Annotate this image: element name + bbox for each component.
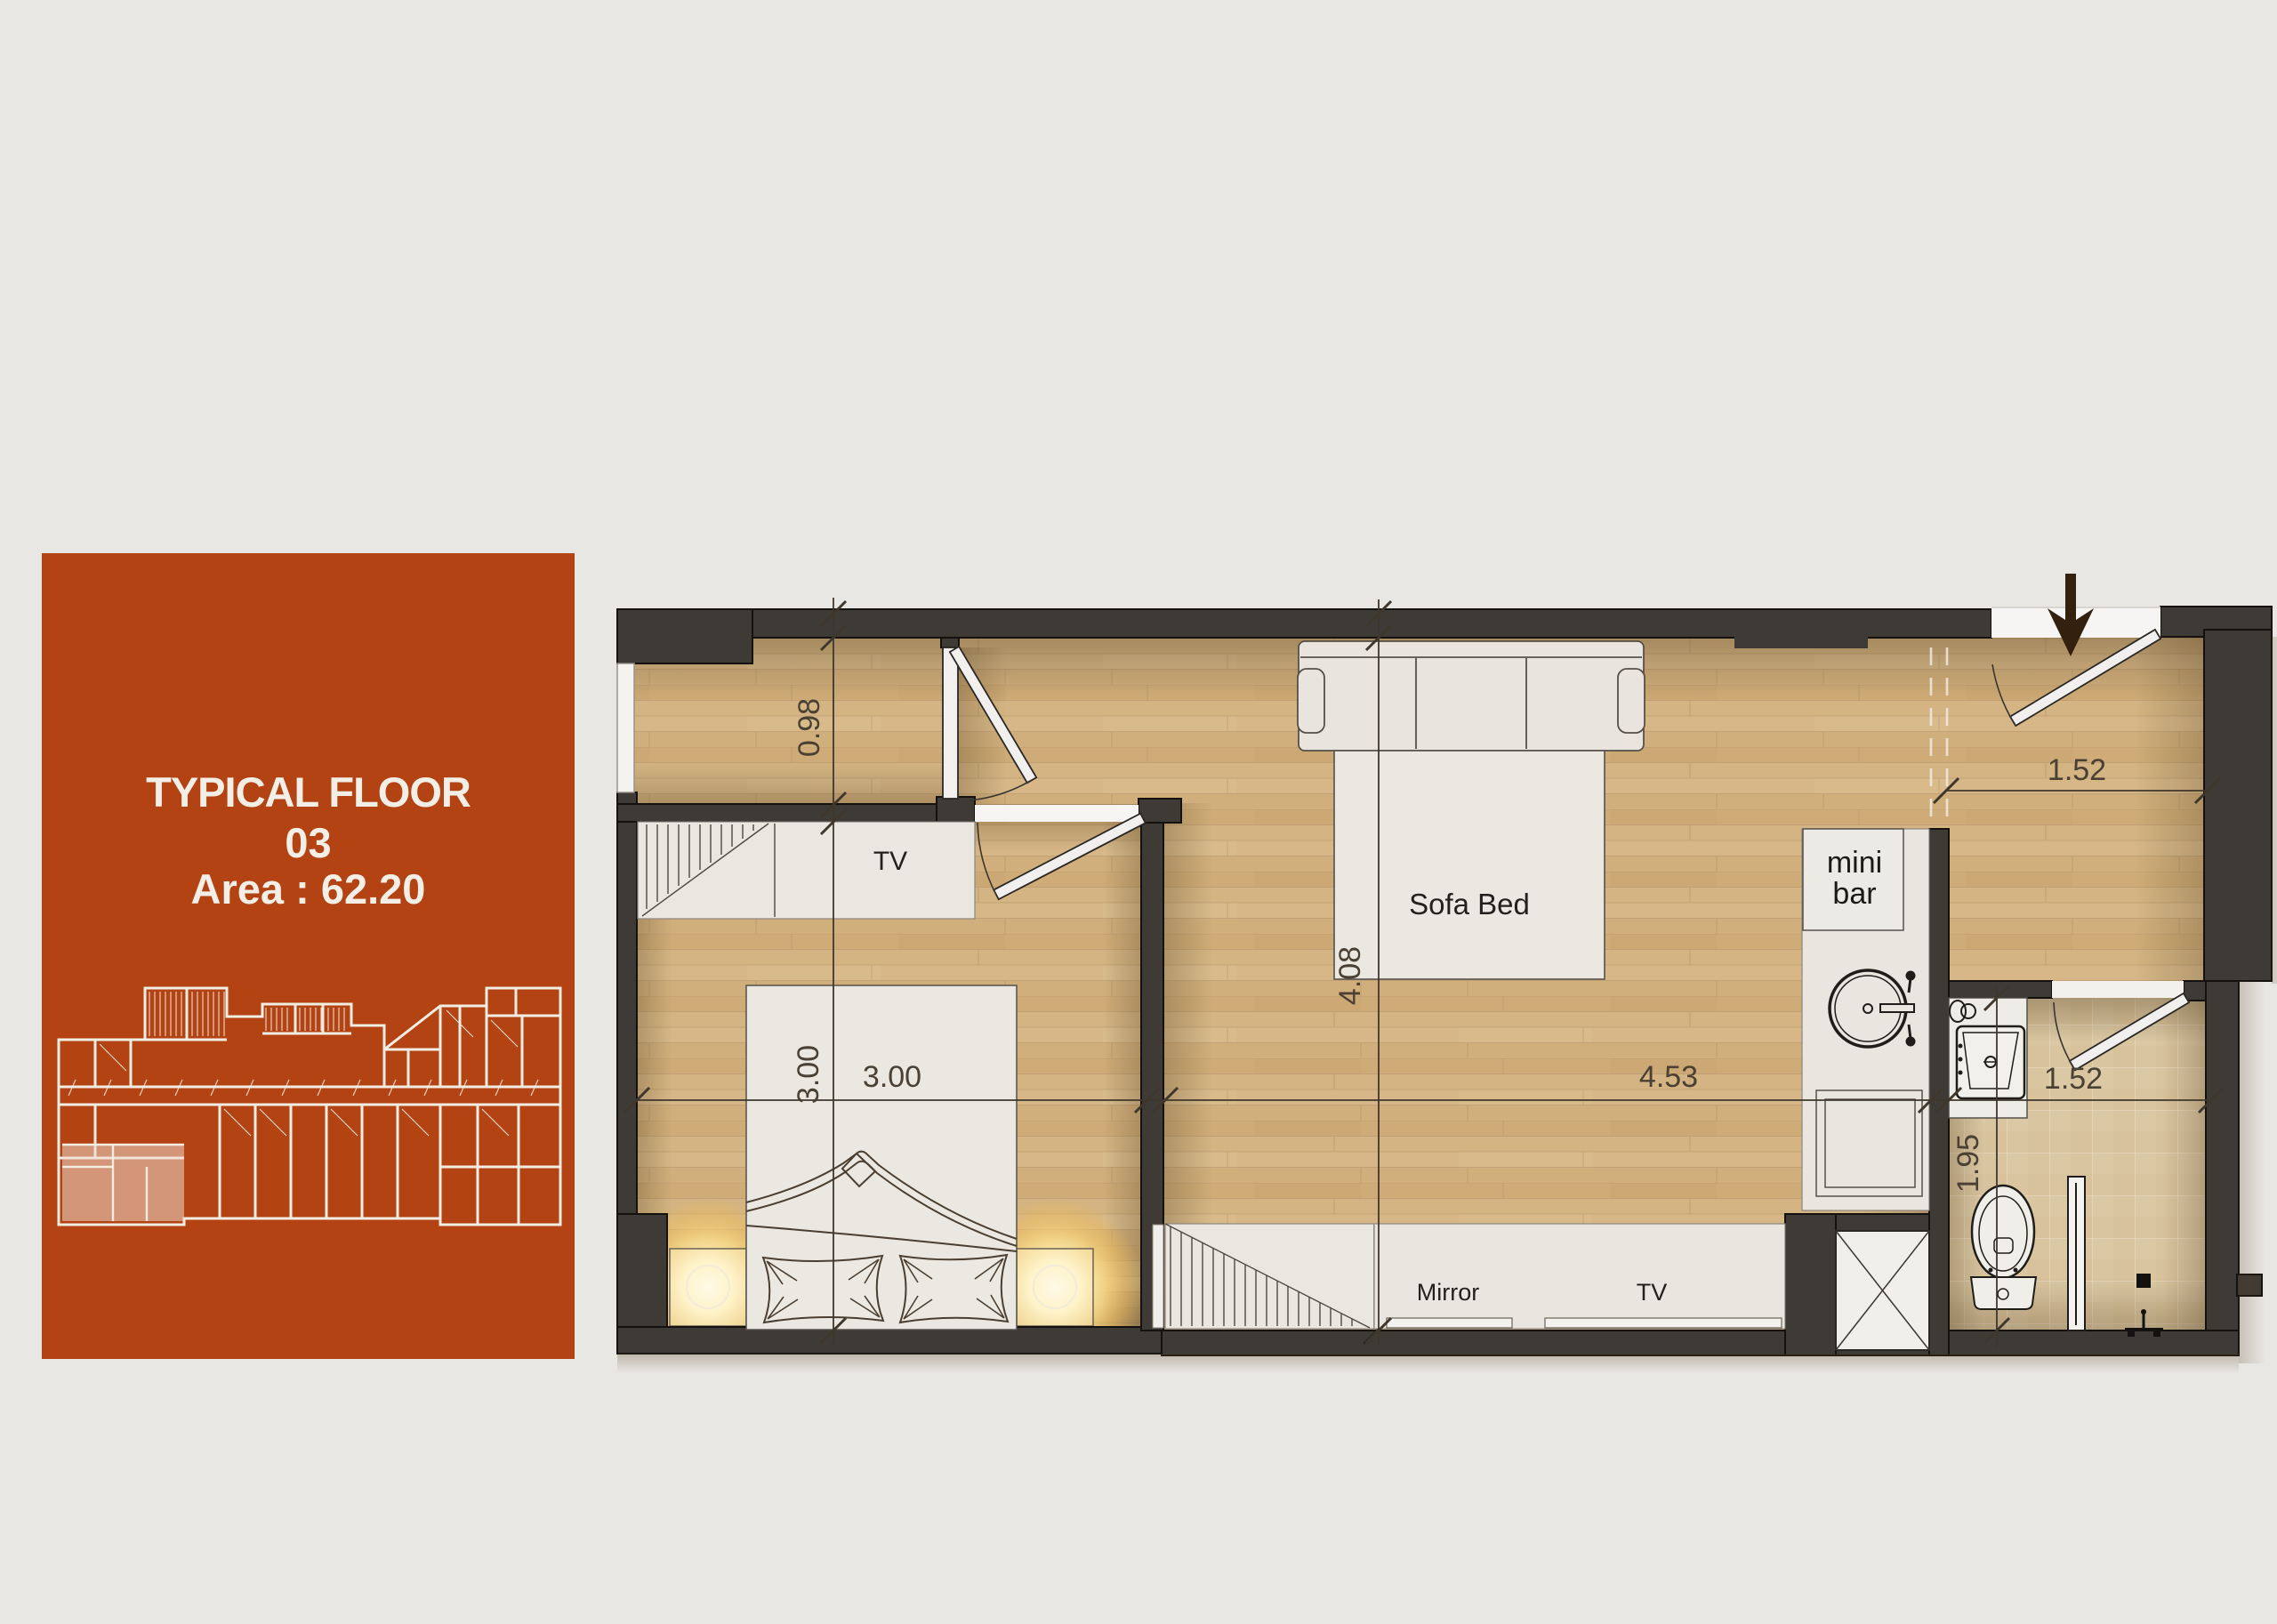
svg-text:Sofa Bed: Sofa Bed — [1409, 888, 1530, 921]
svg-text:3.00: 3.00 — [792, 1045, 825, 1104]
svg-text:TV: TV — [873, 847, 907, 876]
svg-text:TV: TV — [1637, 1279, 1668, 1306]
svg-text:1.95: 1.95 — [1951, 1134, 1985, 1193]
svg-text:1.52: 1.52 — [2048, 753, 2106, 787]
svg-text:0.98: 0.98 — [793, 698, 826, 757]
svg-text:mini: mini — [1827, 846, 1882, 880]
svg-text:3.00: 3.00 — [863, 1060, 921, 1094]
svg-text:4.53: 4.53 — [1639, 1060, 1698, 1094]
svg-text:1.52: 1.52 — [2044, 1062, 2103, 1096]
svg-text:bar: bar — [1832, 877, 1876, 911]
svg-text:4.08: 4.08 — [1333, 946, 1367, 1005]
svg-text:Mirror: Mirror — [1417, 1279, 1479, 1306]
